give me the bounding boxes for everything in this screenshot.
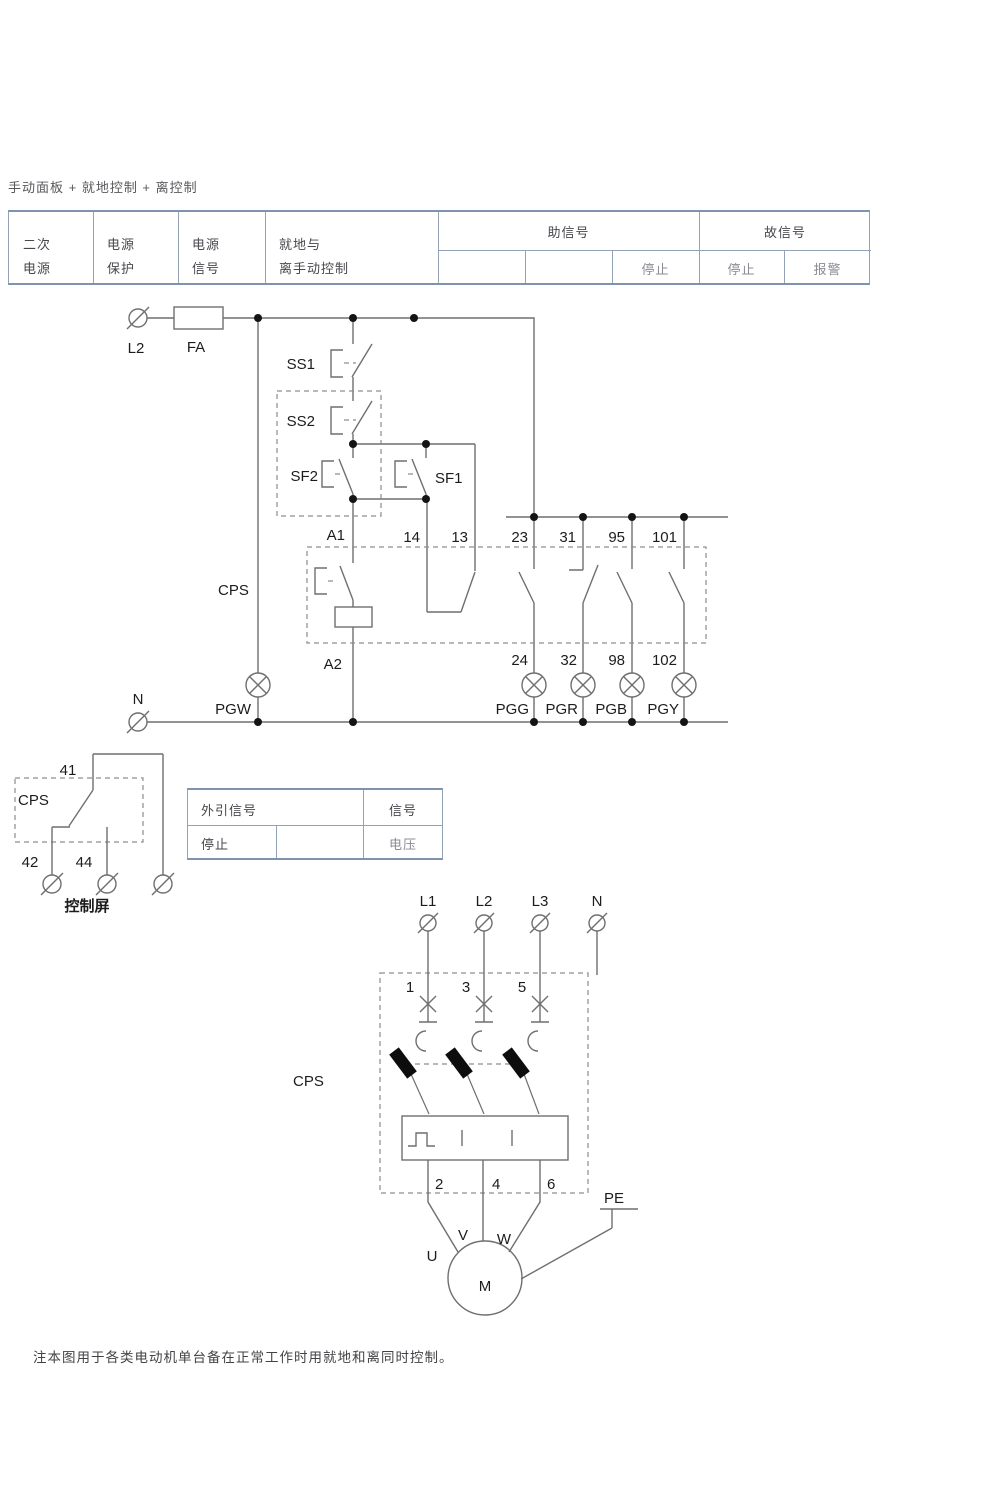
label-pole-2: 2 [435, 1176, 443, 1193]
label-sf2: SF2 [290, 468, 318, 485]
control-circuit [127, 307, 728, 733]
switch-sf2 [322, 444, 353, 499]
label-23: 23 [511, 529, 528, 546]
label-24: 24 [511, 652, 528, 669]
pole-contact-2 [445, 1047, 473, 1078]
label-pole-3: 3 [462, 979, 470, 996]
label-a2: A2 [324, 656, 342, 673]
label-a1: A1 [327, 527, 345, 544]
label-fa: FA [187, 339, 205, 356]
lamp-pgw [246, 673, 270, 697]
terminal-l2-phase [474, 913, 494, 933]
label-phase-l2: L2 [476, 893, 493, 910]
label-44: 44 [76, 854, 93, 871]
schematic-page: 手动面板 + 就地控制 + 离控制 二次 电源 电源 保护 电源 信号 就地与 … [0, 0, 1000, 1494]
cps-aux-box [307, 547, 706, 643]
label-phase-n: N [592, 893, 603, 910]
pole-contact-3 [502, 1047, 530, 1078]
label-42: 42 [22, 854, 39, 871]
lamp-pgb [620, 673, 644, 697]
terminal-n-phase [587, 913, 607, 933]
label-31: 31 [559, 529, 576, 546]
lamp-pgg [522, 673, 546, 697]
lamp-pgy [672, 673, 696, 697]
label-w: W [497, 1231, 512, 1248]
fuse-fa [174, 307, 223, 329]
label-motor-cps: CPS [293, 1073, 324, 1090]
label-cps: CPS [218, 582, 249, 599]
remote-panel-labels: 41 CPS 42 44 控制屏 [18, 762, 110, 915]
dashed-enclosures [15, 363, 706, 1193]
label-pgb: PGB [595, 701, 627, 718]
label-control-panel: 控制屏 [64, 897, 109, 915]
label-sf1: SF1 [435, 470, 463, 487]
label-l2: L2 [128, 340, 145, 357]
terminal-l1-phase [418, 913, 438, 933]
terminal-l2 [127, 307, 149, 329]
label-motor-m: M [479, 1278, 492, 1295]
label-pole-6: 6 [547, 1176, 555, 1193]
pole-drive-links [411, 1074, 539, 1114]
label-ss1: SS1 [287, 356, 315, 373]
power-rails [147, 318, 728, 722]
motor-circuit-labels: L1 L2 L3 N 1 3 5 CPS 2 4 6 PE U V W M [293, 893, 624, 1295]
pole-contact-1 [389, 1047, 417, 1078]
label-phase-l3: L3 [532, 893, 549, 910]
ss2-sf2-box [277, 391, 381, 516]
switch-ss1 [331, 318, 372, 401]
fuse-arcs [416, 1031, 538, 1051]
label-pole-1: 1 [406, 979, 414, 996]
terminal-n [127, 711, 149, 733]
label-41: 41 [60, 762, 77, 779]
label-32: 32 [560, 652, 577, 669]
label-pole-5: 5 [518, 979, 526, 996]
cps-coil [335, 607, 372, 627]
label-95: 95 [608, 529, 625, 546]
terminal-l3-phase [530, 913, 550, 933]
label-101: 101 [652, 529, 677, 546]
pole-contacts [389, 1047, 530, 1078]
motor-feed-wires [428, 1160, 540, 1252]
circuit-diagram: L2 FA SS1 SS2 SF2 SF1 CPS A1 14 13 23 31… [0, 0, 1000, 1494]
label-pgg: PGG [496, 701, 529, 718]
control-circuit-labels: L2 FA SS1 SS2 SF2 SF1 CPS A1 14 13 23 31… [128, 339, 679, 718]
label-102: 102 [652, 652, 677, 669]
pulse-icon [408, 1133, 435, 1146]
label-pole-4: 4 [492, 1176, 500, 1193]
actuator-links [328, 363, 416, 581]
label-panel-cps: CPS [18, 792, 49, 809]
lamp-pgr [571, 673, 595, 697]
label-13: 13 [451, 529, 468, 546]
label-phase-l1: L1 [420, 893, 437, 910]
terminal-42 [41, 873, 63, 895]
label-v: V [458, 1227, 468, 1244]
label-pe: PE [604, 1190, 624, 1207]
cps-contact-95-98 [617, 517, 632, 722]
switch-ss2 [331, 401, 372, 444]
label-u: U [427, 1248, 438, 1265]
terminal-44 [96, 873, 118, 895]
trip-unit-ticks [462, 1130, 512, 1146]
label-pgy: PGY [647, 701, 679, 718]
label-ss2: SS2 [287, 413, 315, 430]
cps-contact-101-102 [669, 517, 684, 722]
label-pgw: PGW [215, 701, 252, 718]
label-98: 98 [608, 652, 625, 669]
phase-wires [428, 931, 597, 1022]
switch-sf1 [395, 444, 426, 499]
label-n: N [133, 691, 144, 708]
label-pgr: PGR [545, 701, 578, 718]
footnote: 注本图用于各类电动机单台备在正常工作时用就地和离同时控制。 [33, 1346, 454, 1366]
label-14: 14 [403, 529, 420, 546]
pe-ground-wire [521, 1209, 638, 1279]
cps-contact-23-24 [519, 517, 534, 722]
terminal-41 [152, 873, 174, 895]
